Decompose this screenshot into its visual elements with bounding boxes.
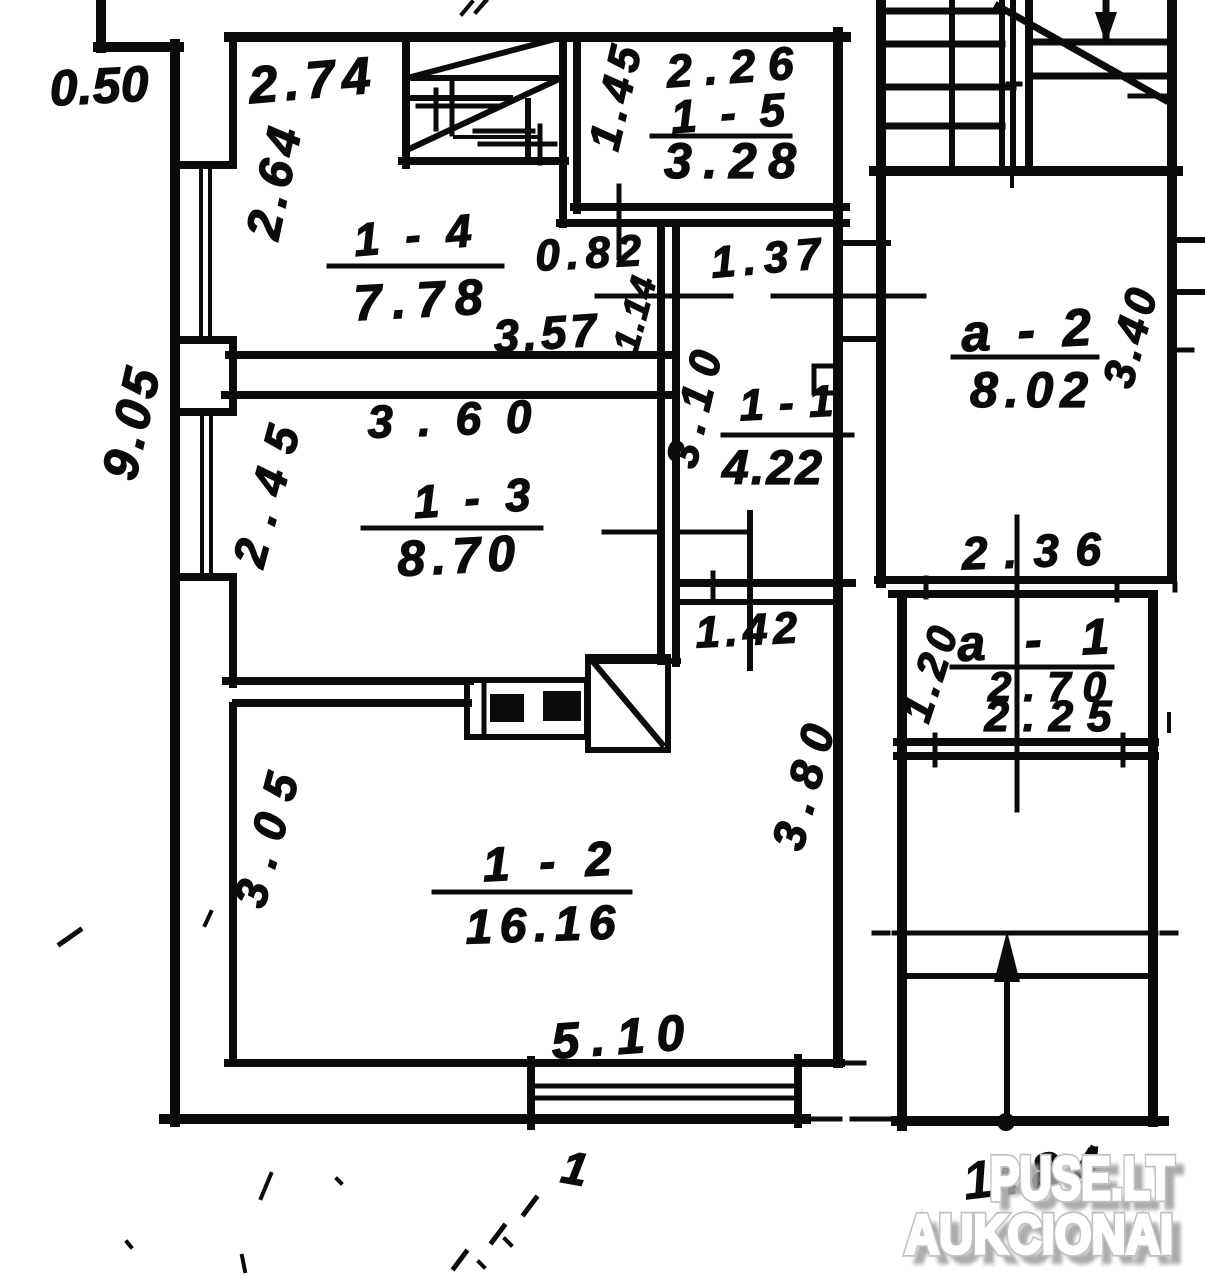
svg-text:PUSE.LT: PUSE.LT: [990, 1146, 1174, 1213]
svg-text:3.28: 3.28: [664, 133, 796, 189]
svg-text:5.10: 5.10: [550, 1004, 687, 1069]
svg-text:0.82: 0.82: [534, 226, 643, 281]
svg-text:0.50: 0.50: [48, 55, 150, 116]
svg-text:1-3: 1-3: [412, 468, 533, 528]
svg-text:3.57: 3.57: [492, 303, 601, 362]
svg-text:8.70: 8.70: [396, 525, 517, 587]
svg-text:4.22: 4.22: [721, 442, 822, 495]
svg-text:a-2: a-2: [960, 299, 1093, 364]
svg-text:1.42: 1.42: [694, 603, 799, 657]
svg-text:16.16: 16.16: [465, 896, 617, 954]
svg-text:AUKCIONAI: AUKCIONAI: [905, 1204, 1173, 1265]
svg-text:1.37: 1.37: [709, 229, 825, 288]
svg-text:1-1: 1-1: [738, 377, 834, 431]
svg-text:1-4: 1-4: [352, 204, 474, 266]
svg-text:2.74: 2.74: [245, 47, 373, 116]
svg-text:1-2: 1-2: [481, 833, 613, 893]
svg-text:8.02: 8.02: [970, 362, 1088, 418]
svg-text:7.78: 7.78: [352, 269, 484, 332]
